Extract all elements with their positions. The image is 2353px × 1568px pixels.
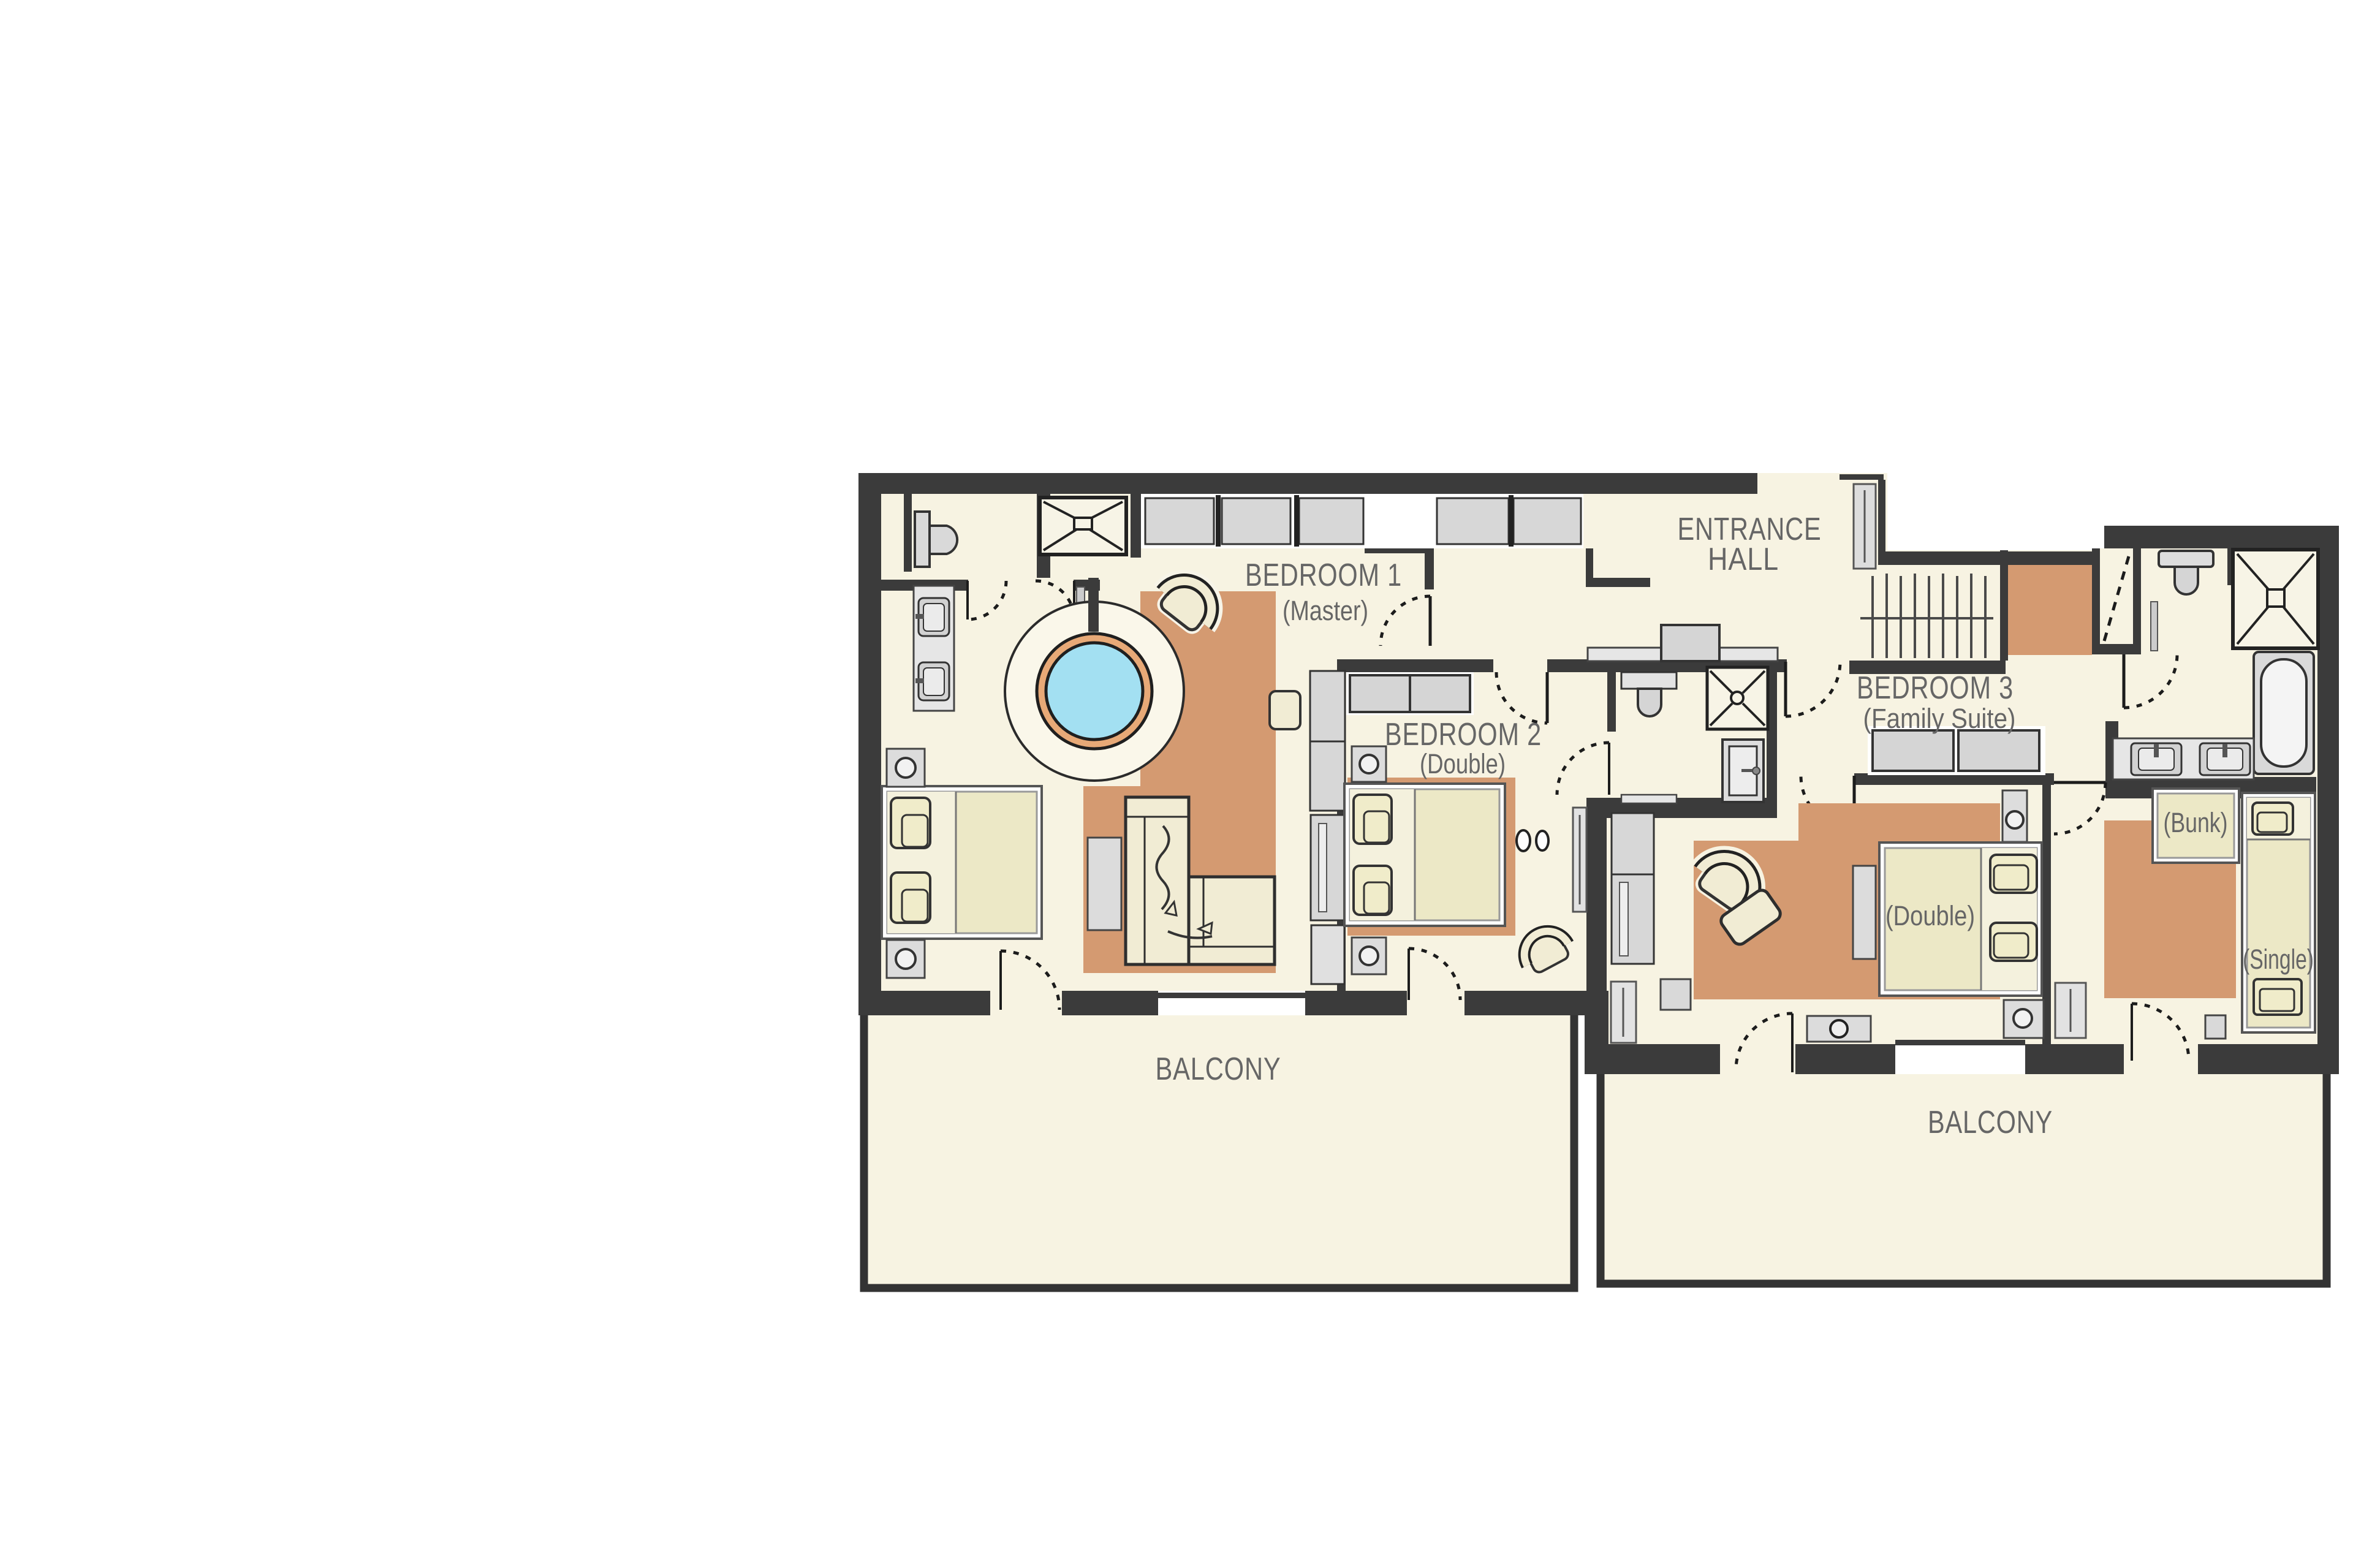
svg-text:BEDROOM 1: BEDROOM 1 bbox=[1245, 558, 1402, 593]
svg-text:(Single): (Single) bbox=[2243, 944, 2314, 975]
svg-text:BALCONY: BALCONY bbox=[1156, 1051, 1281, 1087]
svg-text:BEDROOM 2: BEDROOM 2 bbox=[1385, 717, 1542, 752]
svg-text:(Bunk): (Bunk) bbox=[2164, 807, 2228, 838]
svg-text:(Double): (Double) bbox=[1885, 900, 1975, 931]
svg-text:(Family Suite): (Family Suite) bbox=[1863, 703, 2016, 734]
svg-text:(Double): (Double) bbox=[1420, 748, 1506, 779]
svg-text:BALCONY: BALCONY bbox=[1928, 1105, 2053, 1140]
svg-text:(Master): (Master) bbox=[1283, 595, 1368, 626]
svg-text:BEDROOM 3: BEDROOM 3 bbox=[1857, 670, 2014, 706]
svg-text:HALL: HALL bbox=[1708, 542, 1779, 577]
